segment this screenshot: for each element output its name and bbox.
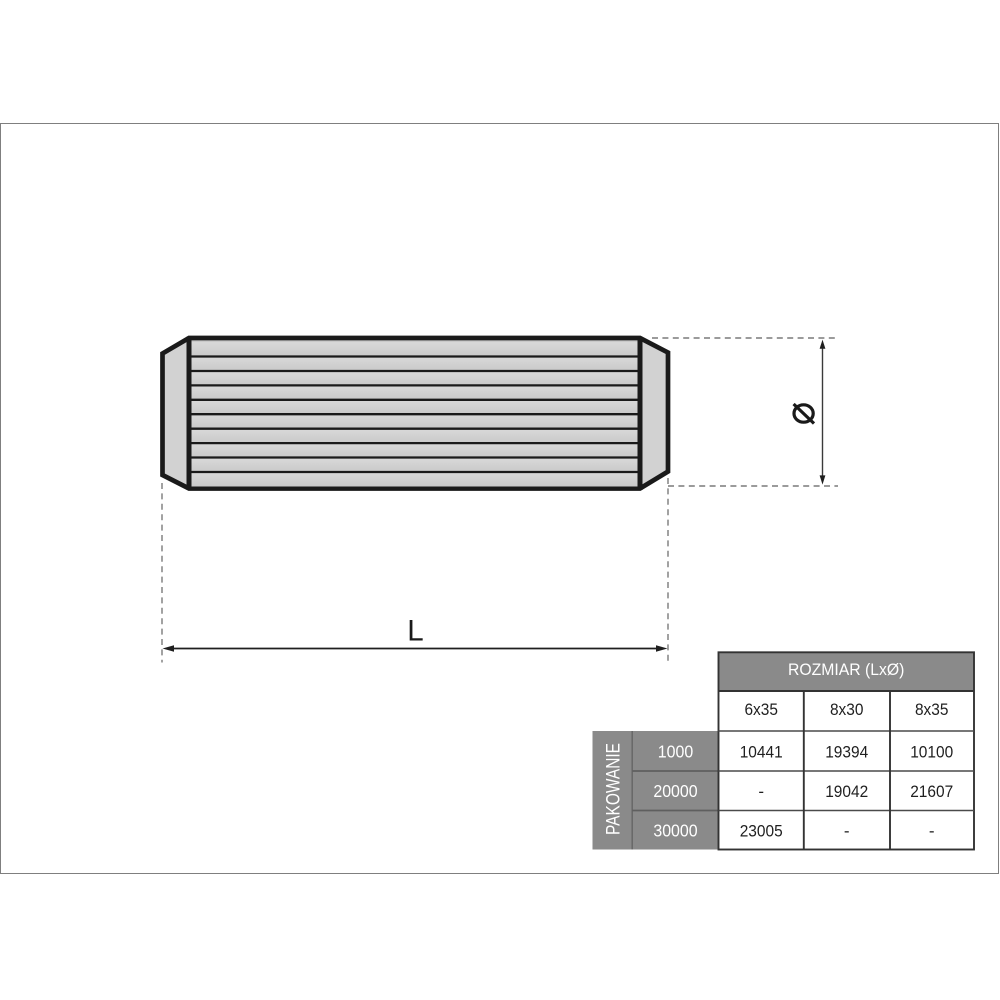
svg-text:8x35: 8x35 xyxy=(915,701,949,719)
svg-text:20000: 20000 xyxy=(653,781,697,801)
svg-text:PAKOWANIE: PAKOWANIE xyxy=(602,743,624,835)
svg-text:19042: 19042 xyxy=(825,782,868,801)
svg-text:1000: 1000 xyxy=(658,742,693,762)
svg-text:23005: 23005 xyxy=(740,822,783,841)
svg-text:30000: 30000 xyxy=(653,821,697,841)
svg-text:6x35: 6x35 xyxy=(744,701,778,719)
svg-text:ROZMIAR (LxØ): ROZMIAR (LxØ) xyxy=(788,661,905,679)
svg-text:-: - xyxy=(758,782,764,801)
svg-text:-: - xyxy=(844,822,850,841)
svg-text:8x30: 8x30 xyxy=(830,701,864,719)
svg-text:21607: 21607 xyxy=(910,782,953,801)
svg-text:10441: 10441 xyxy=(740,743,783,762)
svg-text:L: L xyxy=(407,615,423,648)
svg-text:-: - xyxy=(929,822,935,841)
svg-text:19394: 19394 xyxy=(825,743,868,762)
svg-text:10100: 10100 xyxy=(910,743,953,762)
